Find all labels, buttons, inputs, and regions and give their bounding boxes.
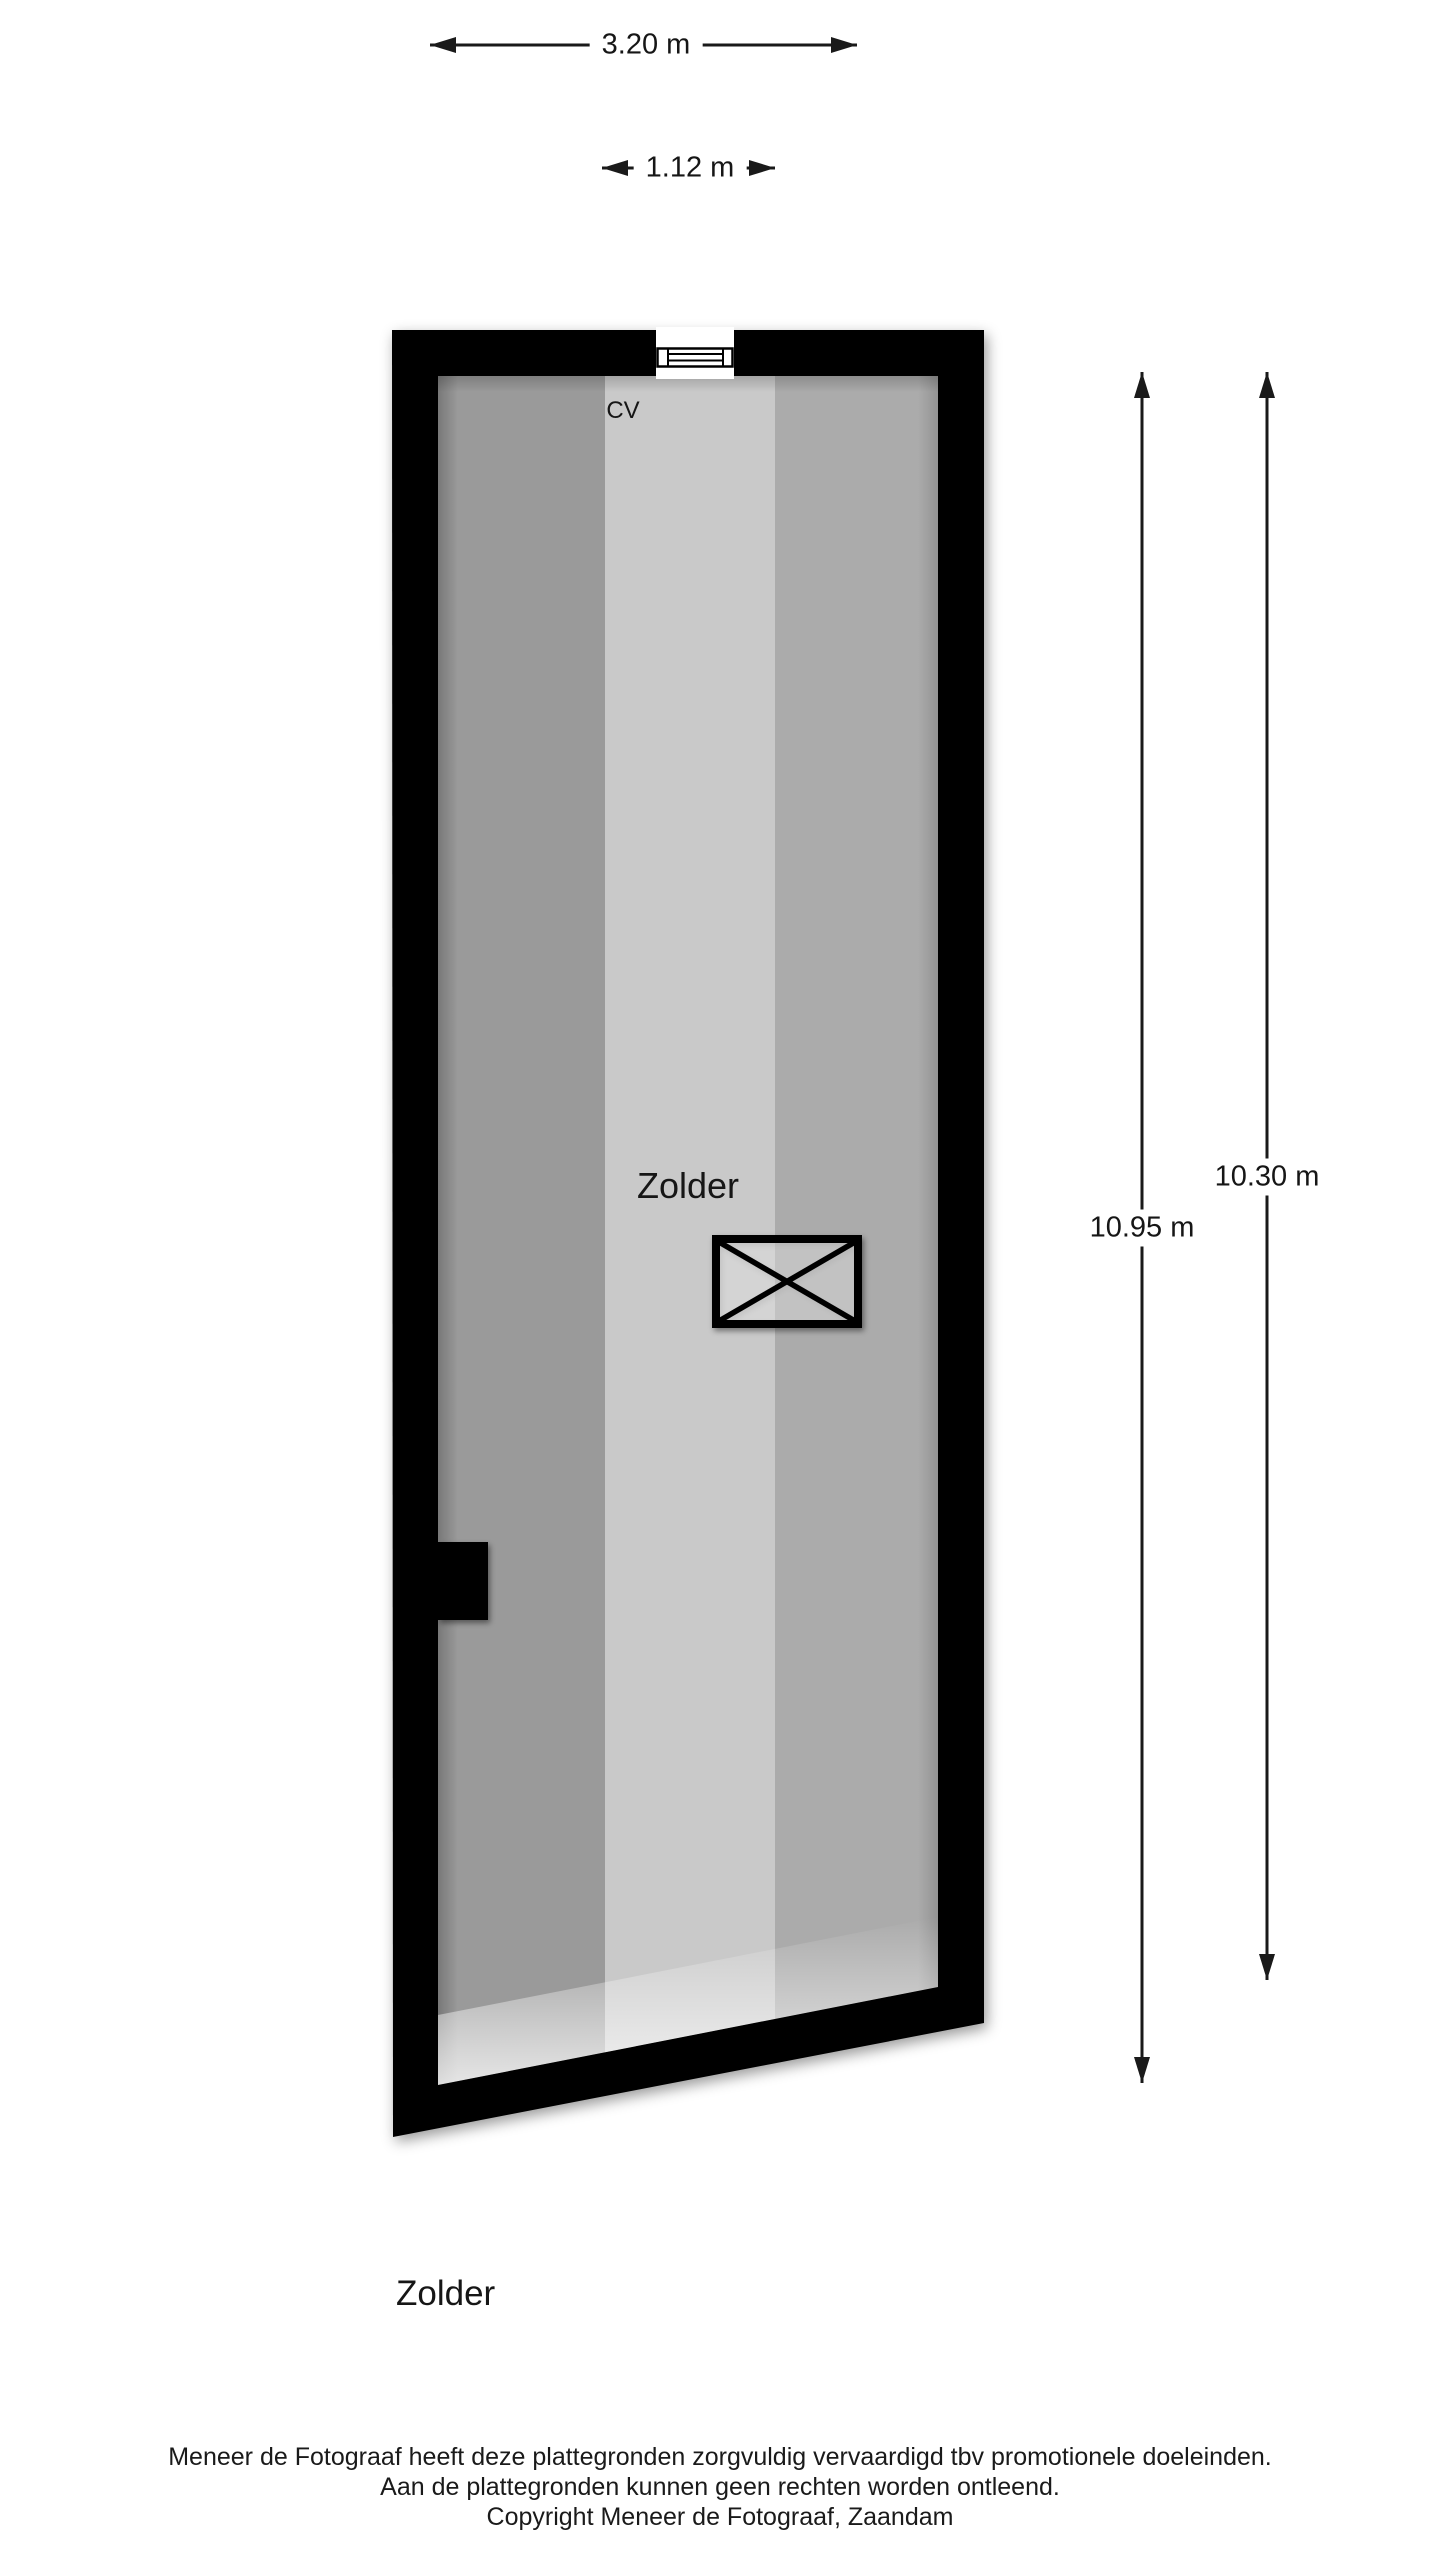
page-title: Zolder — [396, 2274, 495, 2314]
arrow-right-icon — [831, 37, 857, 53]
inner-shadow-left — [438, 376, 458, 2088]
footer-line-3: Copyright Meneer de Fotograaf, Zaandam — [0, 2502, 1440, 2532]
dimension-label-height-right: 10.30 m — [1203, 1159, 1332, 1196]
footer-disclaimer: Meneer de Fotograaf heeft deze plattegro… — [0, 2442, 1440, 2532]
floor-stripe-left — [438, 376, 605, 2088]
footer-line-1: Meneer de Fotograaf heeft deze plattegro… — [0, 2442, 1440, 2472]
arrow-left-icon — [430, 37, 456, 53]
arrow-right-icon — [749, 160, 775, 176]
floorplan-drawing — [0, 0, 1440, 2560]
floorplan-page: 3.20 m 1.12 m 10.95 m 10.30 m CV Zolder … — [0, 0, 1440, 2560]
window-icon — [656, 327, 734, 379]
dimension-label-width-total: 3.20 m — [590, 27, 703, 64]
inner-shadow-right — [918, 376, 938, 2088]
floor-stripe-middle — [605, 376, 775, 2088]
dimension-label-width-window: 1.12 m — [634, 150, 747, 187]
cv-label: CV — [606, 397, 639, 425]
dimension-label-height-left: 10.95 m — [1078, 1210, 1207, 1247]
chimney-block — [438, 1542, 488, 1620]
arrow-up-icon — [1259, 372, 1275, 398]
arrow-down-icon — [1259, 1954, 1275, 1980]
skylight-x-icon — [716, 1239, 858, 1324]
room-label: Zolder — [637, 1165, 739, 1207]
footer-line-2: Aan de plattegronden kunnen geen rechten… — [0, 2472, 1440, 2502]
arrow-down-icon — [1134, 2057, 1150, 2083]
arrow-up-icon — [1134, 372, 1150, 398]
floor-stripe-right — [775, 376, 938, 2088]
arrow-left-icon — [602, 160, 628, 176]
room-interior — [438, 376, 938, 2088]
